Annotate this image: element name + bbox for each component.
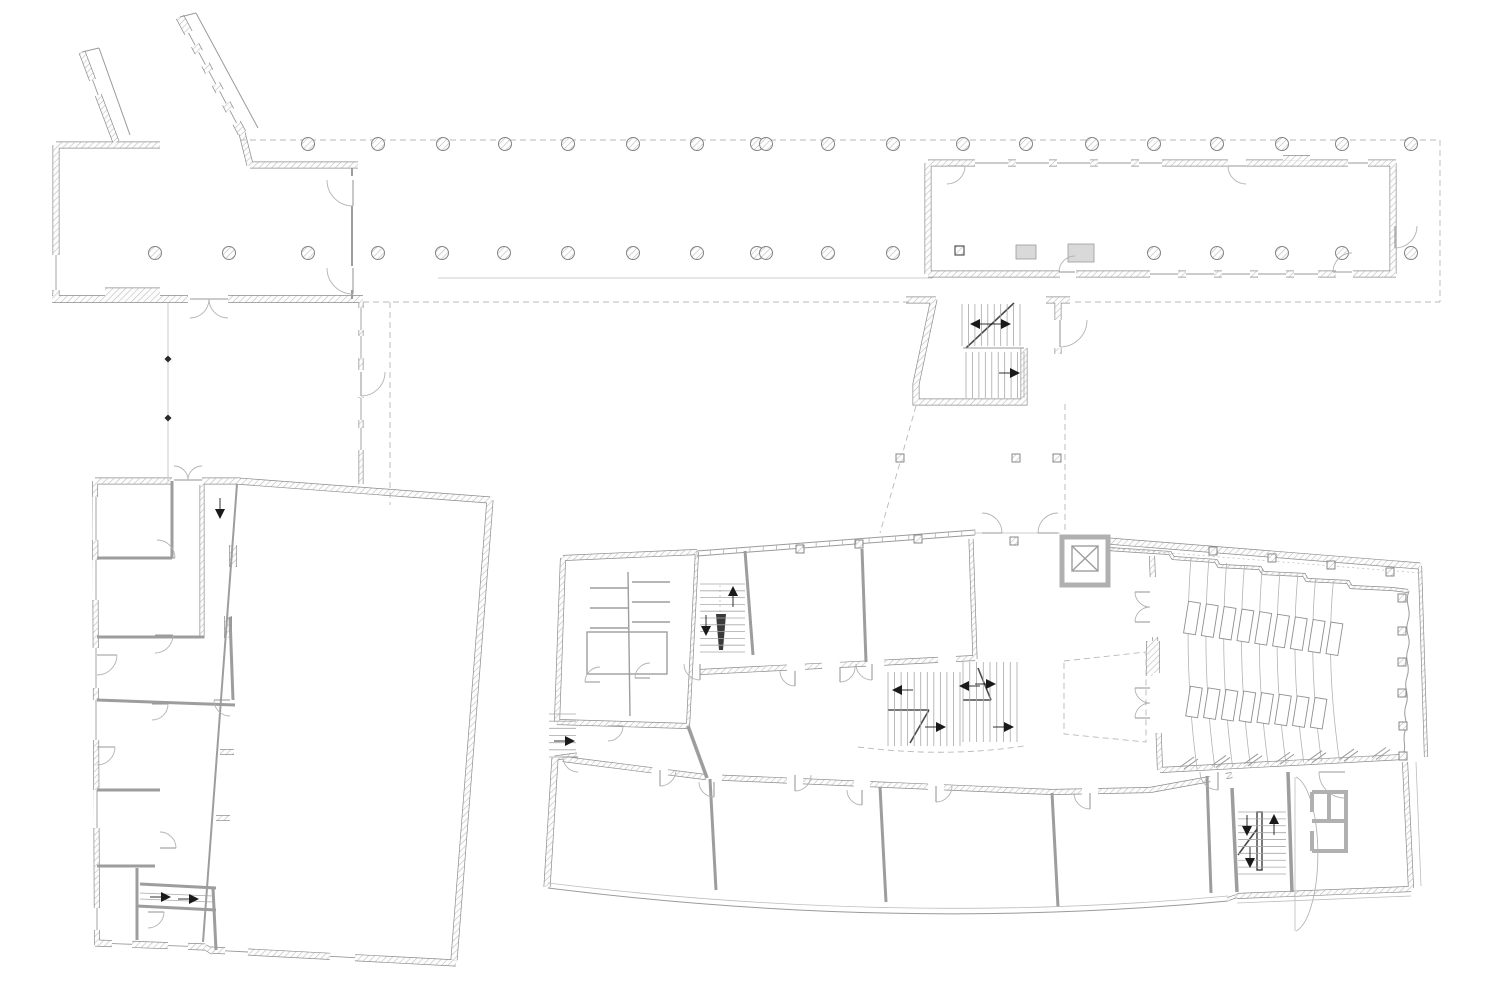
- south-corridor-wall-hatch: [1052, 790, 1150, 792]
- column: [302, 247, 315, 260]
- column: [1405, 138, 1418, 151]
- door-swing-arc: [1135, 592, 1150, 607]
- direction-arrow: [959, 681, 969, 691]
- boundary-marker: [164, 355, 171, 362]
- door-swing-arc: [190, 299, 209, 318]
- direction-arrow: [892, 685, 902, 695]
- aud-north-post: [1268, 554, 1276, 562]
- south-room-partition: [1207, 776, 1211, 893]
- column: [1405, 247, 1418, 260]
- wc-stall-walls: [590, 588, 628, 628]
- ramp-line: [140, 893, 213, 896]
- column: [887, 247, 900, 260]
- main-partition: [688, 726, 707, 778]
- door-swing-arc: [1319, 772, 1345, 798]
- link-row-post: [1012, 454, 1020, 462]
- column: [302, 138, 315, 151]
- door-swing-arc: [608, 726, 623, 741]
- wall-opening: [787, 667, 805, 668]
- door-swing-arc: [209, 299, 228, 318]
- aud-north-post: [1209, 547, 1217, 555]
- ramp-line: [140, 899, 213, 902]
- floor-plan-drawing: [0, 0, 1500, 1000]
- south-facade-outer: [548, 888, 1228, 914]
- column: [1336, 247, 1349, 260]
- south-corridor-wall-hatch: [563, 759, 705, 777]
- auditorium-desk: [1310, 697, 1327, 729]
- partition-walls: [97, 168, 1292, 950]
- door-swing-arc: [361, 372, 385, 396]
- wing-tip: [82, 48, 99, 52]
- column: [1211, 138, 1224, 151]
- west-bld-partition: [213, 888, 216, 950]
- link-row-post: [896, 454, 904, 462]
- door-swing-arc: [327, 180, 353, 206]
- door-swing-arc: [97, 747, 115, 765]
- wall-opening: [866, 663, 884, 664]
- wall-opening: [854, 783, 870, 784]
- wall-opening: [938, 659, 956, 660]
- column: [691, 138, 704, 151]
- plan-line: [1312, 792, 1346, 851]
- aud-east-post: [1398, 594, 1406, 602]
- aud-east-post: [1399, 752, 1407, 760]
- column: [562, 138, 575, 151]
- south-facade-inner: [548, 883, 1228, 908]
- ramp-wall: [137, 906, 216, 910]
- auditorium-desk: [1184, 601, 1201, 634]
- seat-row-line: [1330, 581, 1339, 760]
- auditorium-desk: [1201, 604, 1218, 637]
- door-swing-arc: [1135, 703, 1150, 718]
- curtain-post: [914, 535, 922, 543]
- door-swing-arc: [1228, 166, 1246, 184]
- auditorium-desk: [1293, 696, 1310, 728]
- stair-flight: [963, 662, 1017, 742]
- direction-arrow: [1010, 368, 1020, 378]
- main-east-outer-wall-hatch: [1420, 566, 1426, 757]
- door-swing-arc: [947, 166, 965, 184]
- link-row-post: [1053, 454, 1061, 462]
- aud-east-post: [1399, 722, 1407, 730]
- direction-arrow: [1004, 722, 1014, 732]
- auditorium-desk: [1273, 614, 1290, 647]
- door-swing-arc: [635, 663, 650, 678]
- pier-column: [1068, 244, 1094, 262]
- short-wing-wall-hatch: [82, 52, 116, 142]
- stair-link-wall-hatch: [916, 299, 1024, 402]
- south-room-partition: [710, 779, 716, 890]
- column: [149, 247, 162, 260]
- column: [627, 247, 640, 260]
- door-swing-arc: [148, 912, 164, 928]
- door-swing-arc: [160, 832, 176, 848]
- pavilion-ne-wall-hatch: [242, 133, 250, 165]
- aud-north-post: [1327, 561, 1335, 569]
- wc-stall-walls: [632, 582, 670, 622]
- west-bld-south-wall-hatch: [95, 943, 205, 947]
- aud-east-post: [1398, 627, 1406, 635]
- wing-inner-edge: [99, 48, 130, 135]
- se-stair-rail: [1257, 812, 1262, 870]
- generated-symbols: [97, 138, 1418, 929]
- direction-arrow: [215, 509, 225, 519]
- column: [498, 247, 511, 260]
- elevator-shaft-wall: [1062, 537, 1108, 585]
- column: [499, 138, 512, 151]
- column: [887, 138, 900, 151]
- column: [1148, 247, 1161, 260]
- seat-row-line: [1224, 563, 1233, 767]
- door-swing-arc: [1060, 320, 1087, 347]
- wc-west-wall-hatch: [557, 558, 563, 722]
- direction-arrow: [1242, 826, 1252, 836]
- south-room-partition: [880, 787, 886, 902]
- column: [691, 247, 704, 260]
- elevator-x-icon: [1072, 546, 1098, 571]
- auditorium-desk: [1239, 691, 1256, 723]
- door-swing-arc: [982, 513, 1002, 533]
- main-cross-wall-hatch: [971, 539, 975, 659]
- column: [822, 247, 835, 260]
- column: [1276, 138, 1289, 151]
- column: [1148, 138, 1161, 151]
- pivot-door-arc: [1296, 777, 1318, 931]
- void-projection-dashed: [1064, 652, 1146, 742]
- column: [957, 138, 970, 151]
- plan-details: [82, 13, 1440, 931]
- aud-east-post: [1398, 658, 1406, 666]
- auditorium-desk: [1326, 622, 1343, 655]
- ramp-wall: [140, 884, 216, 888]
- column: [760, 138, 773, 151]
- column: [822, 138, 835, 151]
- wing-tip: [180, 13, 196, 17]
- aud-east-post: [1398, 689, 1406, 697]
- auditorium-desk: [1257, 693, 1274, 725]
- floor-plan-canvas: [0, 0, 1500, 1000]
- south-wing-west-wall-hatch: [547, 758, 555, 887]
- door-swing-arc: [847, 790, 862, 805]
- column: [627, 138, 640, 151]
- entry-post: [1010, 537, 1018, 545]
- door-swing-arc: [840, 667, 855, 682]
- column: [562, 247, 575, 260]
- door-swing-arc: [1135, 688, 1150, 703]
- wc-north-wall-hatch: [563, 552, 697, 558]
- auditorium-desk: [1219, 606, 1236, 639]
- duct-shaft: [1312, 792, 1346, 851]
- stair-flight: [888, 672, 960, 746]
- seat-row-line: [1206, 560, 1215, 768]
- boundary-marker: [164, 414, 171, 421]
- wall-opening: [822, 665, 840, 666]
- curtain-wall-line: [697, 530, 975, 551]
- door-swing-arc: [97, 655, 117, 675]
- column: [1086, 138, 1099, 151]
- door-swing-arc: [152, 704, 168, 720]
- hatched-walls: [52, 17, 1426, 963]
- auditorium-desk: [1221, 689, 1238, 721]
- auditorium-desk: [1186, 686, 1203, 718]
- wall-opening: [1153, 577, 1155, 637]
- column: [372, 247, 385, 260]
- se-stair-wall: [1232, 788, 1237, 892]
- door-swing-arc: [1135, 607, 1150, 622]
- se-east-wall-hatch: [1405, 762, 1411, 888]
- seat-row-line: [1277, 572, 1286, 764]
- column: [1336, 138, 1349, 151]
- stair-void-dashed: [858, 746, 1024, 752]
- direction-arrow: [1245, 858, 1255, 868]
- auditorium-desk: [1275, 694, 1292, 726]
- curtain-wall-line: [697, 535, 975, 556]
- main-partition: [862, 549, 866, 662]
- direction-arrow: [986, 679, 996, 689]
- auditorium-desk: [1237, 609, 1254, 642]
- seat-row-line: [1241, 566, 1250, 766]
- west-bld-partition: [230, 617, 233, 700]
- seat-row-line: [1295, 575, 1304, 762]
- wc-east-wall-hatch: [688, 552, 697, 726]
- direction-arrow: [701, 626, 711, 636]
- seat-row-line: [1313, 578, 1322, 761]
- hatch-overlay: [52, 17, 1426, 963]
- column: [1020, 138, 1033, 151]
- link-projection-dashed: [880, 406, 916, 533]
- door-swing-arc: [1038, 513, 1058, 533]
- auditorium-desk: [1204, 688, 1221, 720]
- door-swing-arc: [1074, 793, 1090, 809]
- column: [1211, 247, 1224, 260]
- door-swing-arc: [1395, 226, 1417, 248]
- column-square: [955, 246, 964, 255]
- se-outer-line: [1416, 762, 1421, 886]
- column: [372, 138, 385, 151]
- door-swing-arc: [327, 268, 353, 294]
- south-room-partition: [1052, 793, 1058, 907]
- aud-north-post: [1386, 568, 1394, 576]
- auditorium-desk: [1290, 617, 1307, 650]
- direction-arrow: [1001, 319, 1011, 329]
- auditorium-desk: [1308, 619, 1325, 652]
- nw-stair-wall: [745, 551, 753, 655]
- column: [1276, 247, 1289, 260]
- se-stair-wall: [1288, 772, 1292, 892]
- column: [436, 247, 449, 260]
- seat-row-line: [1259, 569, 1268, 765]
- direction-arrow: [565, 736, 575, 746]
- pier-column: [1016, 245, 1036, 259]
- wc-counter: [587, 632, 667, 674]
- seat-row-line: [1188, 557, 1197, 769]
- column: [760, 247, 773, 260]
- direction-arrow: [936, 722, 946, 732]
- wc-partition: [628, 572, 630, 716]
- auditorium-desk: [1255, 612, 1272, 645]
- column: [223, 247, 236, 260]
- hall-east-wall-hatch: [454, 500, 490, 960]
- stair-section-wedge: [716, 614, 726, 650]
- wall-opening: [1156, 673, 1158, 733]
- south-corridor-wall-hatch: [705, 777, 1052, 792]
- column: [437, 138, 450, 151]
- door-swing-arc: [780, 671, 795, 686]
